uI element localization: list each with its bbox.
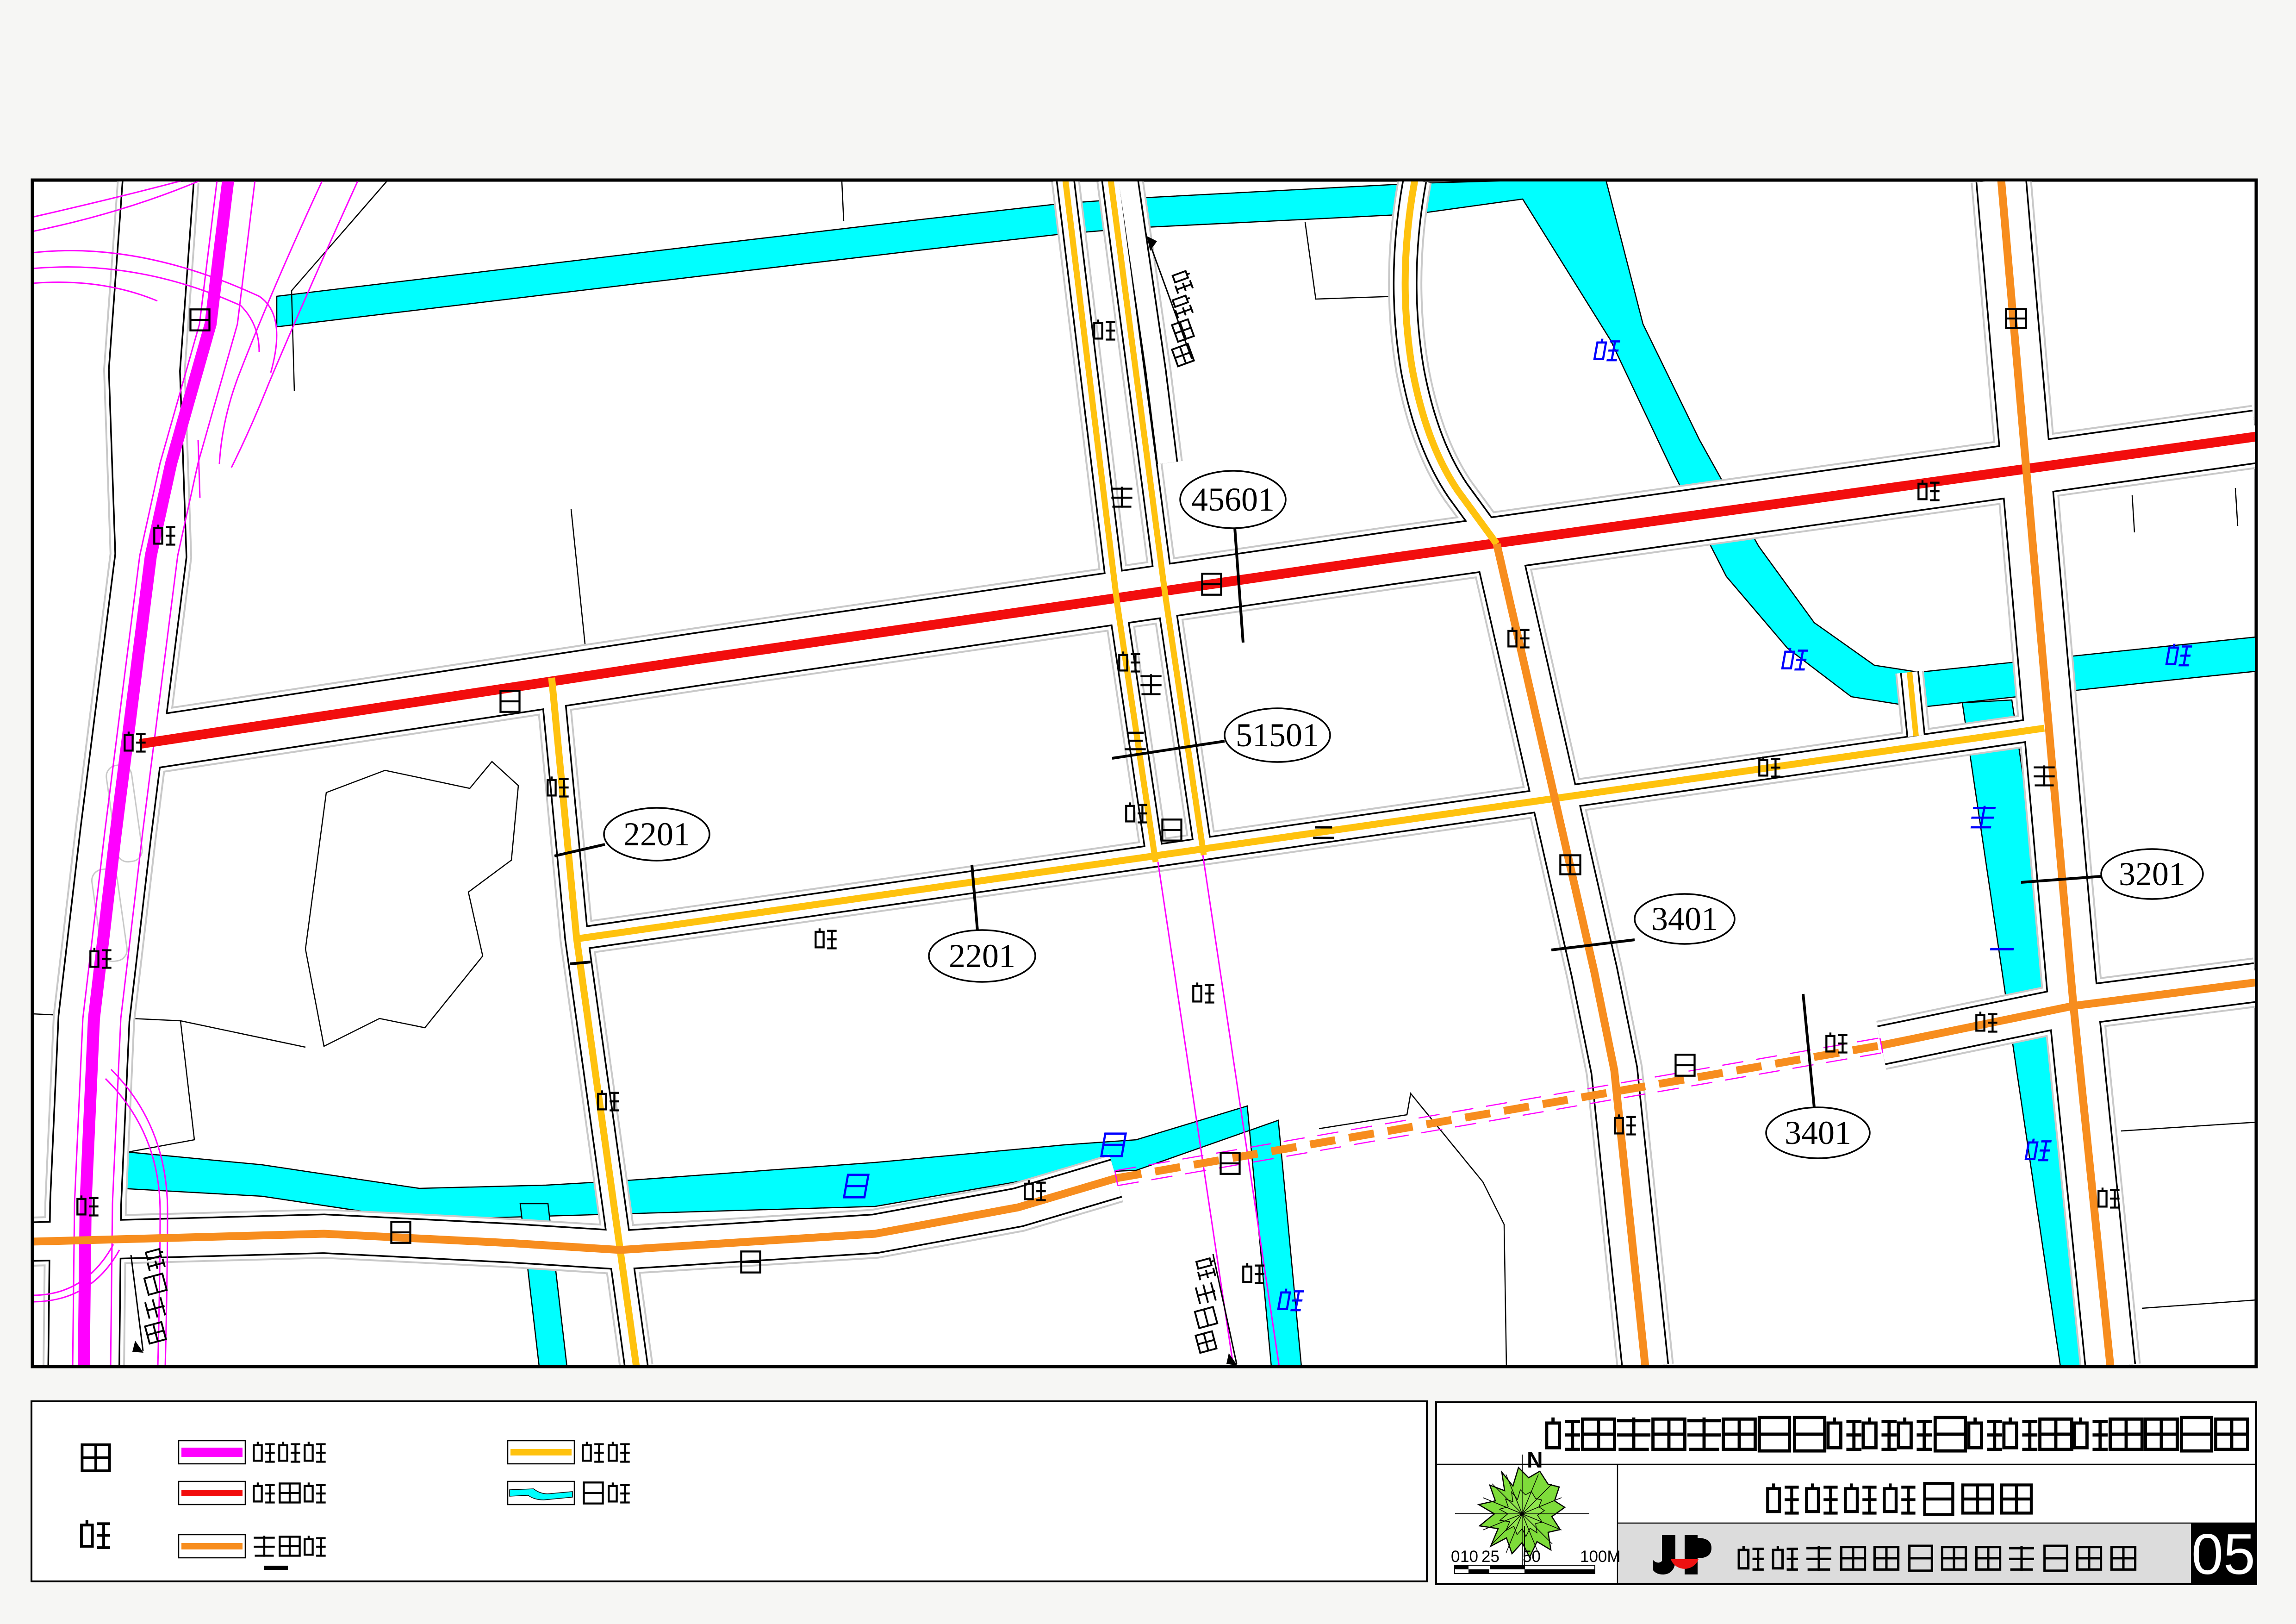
svg-text:10: 10: [1460, 1548, 1478, 1566]
svg-text:3401: 3401: [1785, 1114, 1851, 1151]
svg-text:50: 50: [1523, 1548, 1541, 1566]
svg-text:3201: 3201: [2119, 856, 2185, 893]
svg-text:0: 0: [1451, 1548, 1460, 1566]
svg-text:100M: 100M: [1580, 1548, 1621, 1566]
svg-text:05: 05: [2191, 1523, 2255, 1587]
svg-text:25: 25: [1481, 1548, 1500, 1566]
svg-text:2201: 2201: [949, 937, 1015, 974]
svg-text:2201: 2201: [623, 816, 690, 853]
svg-text:45601: 45601: [1191, 481, 1275, 518]
svg-text:3401: 3401: [1651, 900, 1718, 937]
svg-text:51501: 51501: [1236, 717, 1319, 754]
svg-text:N: N: [1527, 1448, 1543, 1473]
